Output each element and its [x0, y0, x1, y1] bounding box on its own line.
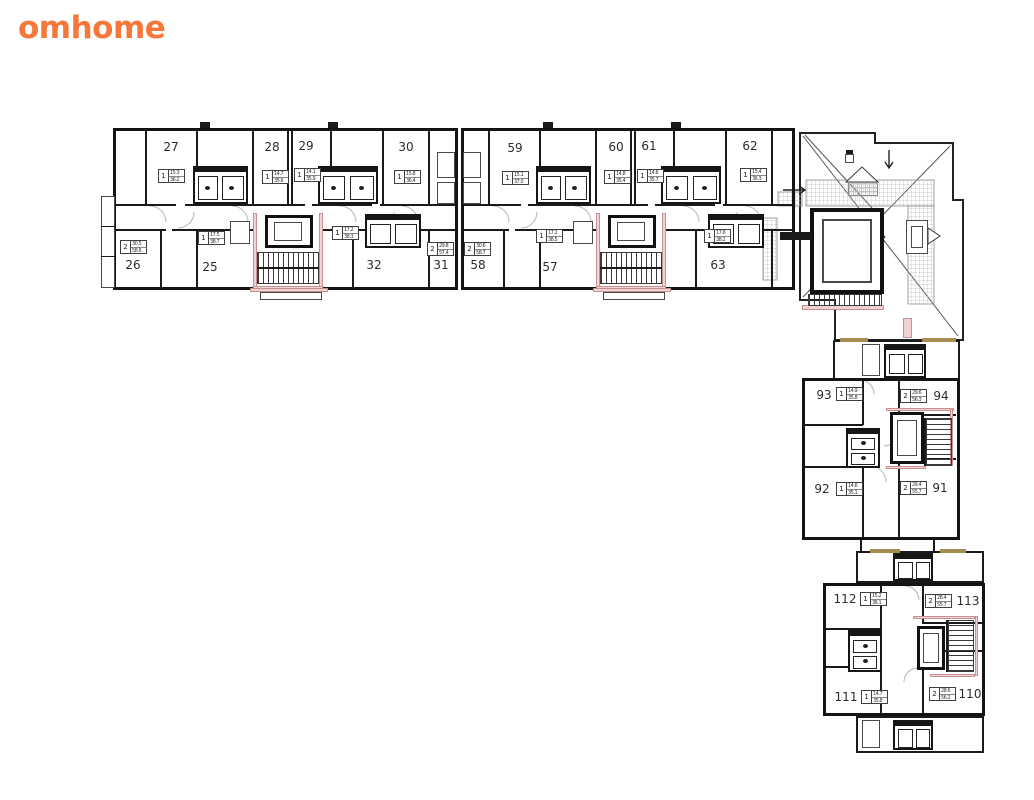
- balcony: [437, 182, 455, 204]
- fixture: [194, 167, 247, 172]
- room-count: 1: [862, 691, 872, 703]
- room-count: 1: [333, 227, 343, 239]
- core-wall: [662, 213, 666, 290]
- wall-accent: [840, 338, 868, 342]
- fixture: [359, 186, 364, 190]
- terrace-stairs: [808, 294, 882, 306]
- area-total: 38.5: [547, 236, 562, 243]
- bathroom-cluster: [846, 428, 880, 468]
- apartment-31-info: 2 29.857.4: [427, 242, 454, 256]
- fixture: [885, 345, 925, 350]
- vent-box: [911, 226, 923, 248]
- wall: [723, 204, 793, 206]
- wall: [898, 460, 900, 538]
- wall: [464, 204, 521, 206]
- wall: [101, 226, 115, 227]
- areas: 17.238.5: [547, 230, 562, 242]
- bathroom: [230, 221, 250, 244]
- wall: [488, 131, 490, 204]
- areas: 15.436.3: [751, 169, 766, 181]
- staircase: [948, 620, 974, 672]
- room-count: 1: [503, 172, 513, 184]
- balcony: [463, 152, 481, 178]
- areas: 14.635.7: [648, 170, 663, 182]
- fixture: [548, 186, 553, 190]
- wall: [101, 256, 115, 257]
- wall: [461, 229, 509, 231]
- room-count: 2: [926, 595, 936, 607]
- stair-landing: [257, 267, 319, 269]
- bathtub: [898, 729, 913, 748]
- fixture: [662, 167, 720, 172]
- bathroom-cluster: [193, 166, 248, 204]
- vent-shaft: [200, 122, 210, 128]
- area-total: 56.2: [940, 694, 955, 701]
- fixture: [331, 186, 336, 190]
- bathtub: [908, 354, 923, 374]
- apartment-63[interactable]: 63: [710, 258, 725, 272]
- apartment-113[interactable]: 113: [957, 594, 980, 608]
- apartment-58-info: 2 30.658.7: [464, 242, 491, 256]
- area-total: 36.4: [405, 177, 420, 184]
- core-wall: [930, 674, 975, 677]
- apartment-112[interactable]: 112: [834, 592, 857, 606]
- bathroom-cluster: [893, 553, 933, 581]
- bathroom: [573, 221, 593, 244]
- room-count: 1: [263, 171, 273, 183]
- area-total: 38.7: [209, 238, 224, 245]
- areas: 14.735.6: [273, 171, 288, 183]
- apartment-30-info: 1 15.836.4: [394, 170, 421, 184]
- vent-shaft: [671, 122, 681, 128]
- stair-landing: [600, 267, 662, 269]
- room-count: 1: [537, 230, 547, 242]
- wing1-balcony: [101, 196, 115, 288]
- bathroom-cluster: [536, 166, 591, 204]
- area-total: 56.3: [911, 396, 926, 403]
- apartment-58[interactable]: 58: [470, 258, 485, 272]
- areas: 15.336.2: [169, 170, 184, 182]
- apartment-32[interactable]: 32: [366, 258, 381, 272]
- bathroom-cluster: [893, 720, 933, 750]
- area-total: 57.4: [438, 249, 453, 256]
- bathroom: [862, 720, 880, 748]
- fixture: [863, 644, 868, 648]
- wall: [528, 204, 648, 206]
- area-total: 35.6: [273, 177, 288, 184]
- room-count: 2: [428, 243, 438, 255]
- wall: [655, 204, 715, 206]
- entrance-porch: [260, 292, 322, 300]
- apartment-112-info: 1 15.236.1: [860, 592, 887, 606]
- wall: [595, 131, 597, 204]
- hydrant-icon: [845, 154, 854, 163]
- apartment-32-info: 1 17.238.3: [332, 226, 359, 240]
- elevator-car: [617, 222, 645, 241]
- areas: 14.735.8: [872, 691, 887, 703]
- apartment-28-info: 1 14.735.6: [262, 170, 289, 184]
- area-total: 58.7: [475, 249, 490, 256]
- areas: 15.137.0: [513, 172, 528, 184]
- apartment-111[interactable]: 111: [835, 690, 858, 704]
- bathroom-cluster: [848, 630, 882, 672]
- vent-highlight: [903, 318, 912, 338]
- apartment-59-info: 1 15.137.0: [502, 171, 529, 185]
- apartment-94[interactable]: 94: [933, 389, 948, 403]
- wall: [771, 231, 773, 287]
- areas: 29.857.4: [438, 243, 453, 255]
- room-count: 2: [121, 241, 131, 253]
- wall: [312, 204, 372, 206]
- area-total: 55.7: [936, 601, 951, 608]
- fixture: [205, 186, 210, 190]
- elevator-car: [274, 222, 302, 241]
- apartment-92[interactable]: 92: [814, 482, 829, 496]
- vent-shaft: [543, 122, 553, 128]
- staircase: [926, 418, 952, 466]
- bathtub: [395, 224, 417, 244]
- elevator-car: [897, 420, 917, 456]
- room-count: 1: [295, 169, 305, 181]
- wall-accent: [922, 338, 956, 342]
- apartment-94-info: 2 29.656.3: [900, 389, 927, 403]
- wall: [287, 131, 289, 204]
- wall: [428, 231, 430, 287]
- room-count: 2: [901, 482, 911, 494]
- wall: [382, 131, 384, 204]
- bathtub: [370, 224, 391, 244]
- apartment-91[interactable]: 91: [932, 481, 947, 495]
- fixture: [674, 186, 679, 190]
- terrace-elevator-car: [822, 219, 872, 283]
- wall: [428, 131, 430, 204]
- wall: [116, 229, 166, 231]
- apartment-93[interactable]: 93: [816, 388, 831, 402]
- bathroom-cluster: [318, 166, 378, 204]
- apartment-28[interactable]: 28: [264, 140, 279, 154]
- balcony: [463, 182, 481, 204]
- apartment-93-info: 1 14.935.8: [836, 387, 863, 401]
- fixture: [894, 554, 932, 559]
- room-count: 2: [930, 688, 940, 700]
- bathtub: [916, 729, 930, 748]
- areas: 15.836.4: [405, 171, 420, 183]
- apartment-111-info: 1 14.735.8: [861, 690, 888, 704]
- area-total: 38.2: [715, 236, 730, 243]
- apartment-61[interactable]: 61: [641, 139, 656, 153]
- room-count: 1: [395, 171, 405, 183]
- room-count: 2: [465, 243, 475, 255]
- vent-box: [848, 182, 878, 196]
- vent-shaft: [328, 122, 338, 128]
- wall: [291, 131, 293, 204]
- apartment-30[interactable]: 30: [398, 140, 413, 154]
- fixture: [861, 456, 866, 460]
- apartment-92-info: 1 14.635.1: [836, 482, 863, 496]
- areas: 17.538.7: [209, 232, 224, 244]
- room-count: 1: [605, 171, 615, 183]
- areas: 15.236.1: [871, 593, 886, 605]
- core-wall: [975, 616, 978, 676]
- area-total: 37.0: [513, 178, 528, 185]
- bathtub: [916, 562, 930, 579]
- areas: 29.455.7: [911, 482, 926, 494]
- apartment-63-info: 1 17.638.2: [704, 229, 731, 243]
- balcony: [437, 152, 455, 178]
- apartment-27-info: 1 15.336.2: [158, 169, 185, 183]
- core-wall: [886, 466, 926, 469]
- fixture: [229, 186, 234, 190]
- wall: [780, 232, 812, 240]
- wall: [862, 468, 864, 538]
- area-total: 38.3: [343, 233, 358, 240]
- wall: [695, 231, 697, 287]
- apartment-62[interactable]: 62: [742, 139, 757, 153]
- fixture: [319, 167, 377, 172]
- apartment-27[interactable]: 27: [163, 140, 178, 154]
- stair-landing: [946, 620, 948, 672]
- bathroom-cluster: [365, 214, 421, 248]
- room-count: 1: [199, 232, 209, 244]
- area-total: 55.7: [911, 488, 926, 495]
- fixture: [572, 186, 577, 190]
- area-total: 35.8: [847, 394, 862, 401]
- fixture: [863, 659, 868, 663]
- areas: 30.658.7: [475, 243, 490, 255]
- room-count: 2: [901, 390, 911, 402]
- apartment-60-info: 1 14.835.4: [604, 170, 631, 184]
- apartment-110-info: 2 28.656.2: [929, 687, 956, 701]
- apartment-62-info: 1 15.436.3: [740, 168, 767, 182]
- omhome-logo[interactable]: omhome: [18, 10, 165, 46]
- apartment-29-info: 1 14.135.9: [294, 168, 321, 182]
- room-count: 1: [159, 170, 169, 182]
- areas: 17.238.3: [343, 227, 358, 239]
- wall: [634, 131, 636, 204]
- areas: 28.656.2: [940, 688, 955, 700]
- wall: [185, 204, 305, 206]
- wall: [145, 131, 147, 204]
- bathroom-cluster: [884, 344, 926, 378]
- wall-accent: [940, 549, 966, 553]
- areas: 30.558.6: [131, 241, 146, 253]
- fixture: [847, 429, 879, 434]
- room-count: 1: [705, 230, 715, 242]
- area-total: 35.1: [847, 489, 862, 496]
- wall: [630, 131, 632, 204]
- area-total: 58.6: [131, 247, 146, 254]
- fixture: [849, 631, 881, 636]
- areas: 14.635.1: [847, 483, 862, 495]
- wall: [252, 131, 254, 204]
- area-total: 36.1: [871, 599, 886, 606]
- wall: [725, 131, 727, 204]
- area-total: 36.2: [169, 176, 184, 183]
- core-wall: [913, 616, 975, 619]
- apartment-91-info: 2 29.455.7: [900, 481, 927, 495]
- room-count: 1: [837, 483, 847, 495]
- apartment-25[interactable]: 25: [202, 260, 217, 274]
- fixture: [702, 186, 707, 190]
- elevator-car: [923, 633, 939, 663]
- bathroom-cluster: [661, 166, 721, 204]
- apartment-57-info: 1 17.238.5: [536, 229, 563, 243]
- floor-plan-page: omhome: [0, 0, 1034, 800]
- apartment-110[interactable]: 110: [959, 687, 982, 701]
- bathtub: [898, 562, 913, 579]
- apartment-26[interactable]: 26: [125, 258, 140, 272]
- areas: 14.935.8: [847, 388, 862, 400]
- area-total: 35.7: [648, 176, 663, 183]
- core-wall: [886, 408, 954, 411]
- areas: 14.835.4: [615, 171, 630, 183]
- wall: [503, 231, 505, 287]
- core-wall: [319, 213, 323, 290]
- area-total: 35.4: [615, 177, 630, 184]
- apartment-113-info: 2 28.455.7: [925, 594, 952, 608]
- fixture: [366, 215, 420, 220]
- wall: [380, 204, 456, 206]
- areas: 29.656.3: [911, 390, 926, 402]
- area-total: 35.8: [872, 697, 887, 704]
- bathtub: [889, 354, 905, 374]
- room-count: 1: [638, 170, 648, 182]
- apartment-61-info: 1 14.635.7: [637, 169, 664, 183]
- area-total: 35.9: [305, 175, 320, 182]
- wall: [160, 231, 162, 287]
- apartment-25-info: 1 17.538.7: [198, 231, 225, 245]
- apartment-26-info: 2 30.558.6: [120, 240, 147, 254]
- wall: [116, 204, 176, 206]
- fixture: [537, 167, 590, 172]
- areas: 14.135.9: [305, 169, 320, 181]
- stair-landing: [924, 418, 926, 466]
- room-count: 1: [837, 388, 847, 400]
- room-count: 1: [861, 593, 871, 605]
- room-count: 1: [741, 169, 751, 181]
- areas: 17.638.2: [715, 230, 730, 242]
- areas: 28.455.7: [936, 595, 951, 607]
- apartment-57[interactable]: 57: [542, 260, 557, 274]
- wall: [771, 131, 773, 204]
- apartment-29[interactable]: 29: [298, 139, 313, 153]
- apartment-31[interactable]: 31: [433, 258, 448, 272]
- fixture: [709, 215, 763, 220]
- wall: [805, 424, 863, 426]
- fixture: [894, 721, 932, 726]
- apartment-60[interactable]: 60: [608, 140, 623, 154]
- bathtub: [738, 224, 760, 244]
- apartment-59[interactable]: 59: [507, 141, 522, 155]
- fixture: [861, 441, 866, 445]
- bathroom: [862, 344, 880, 376]
- entrance-porch: [603, 292, 665, 300]
- area-total: 36.3: [751, 175, 766, 182]
